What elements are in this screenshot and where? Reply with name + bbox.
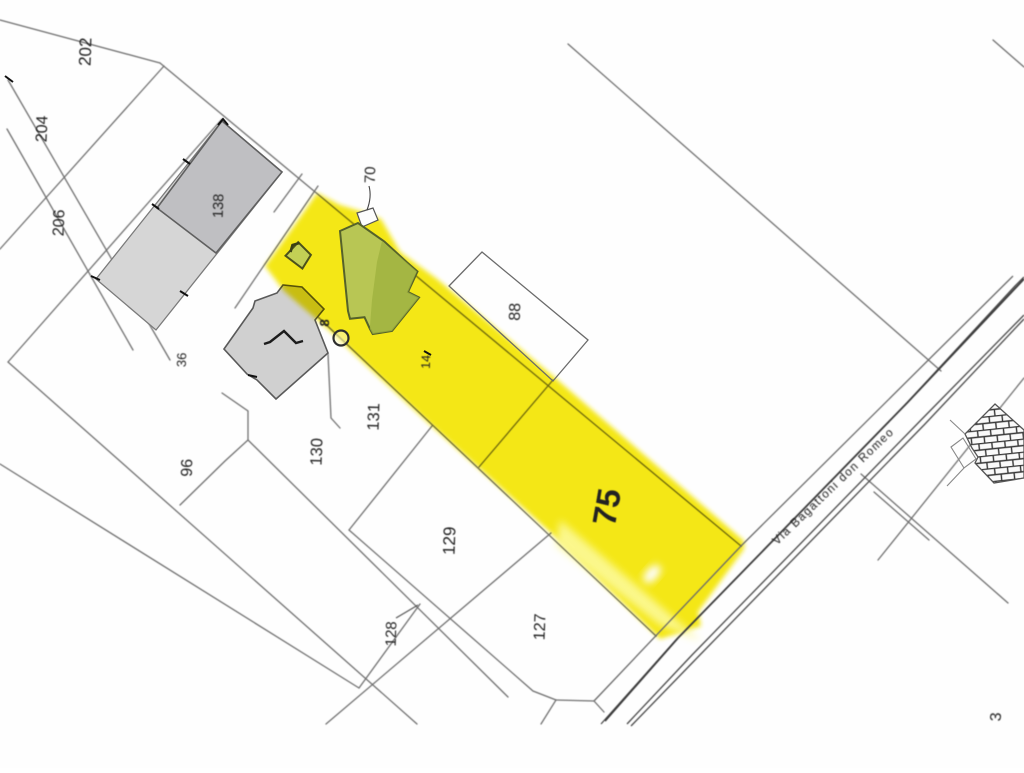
svg-text:206: 206: [51, 209, 69, 236]
svg-text:127: 127: [532, 613, 550, 640]
svg-text:14: 14: [419, 355, 433, 369]
svg-text:88: 88: [507, 303, 525, 321]
svg-text:138: 138: [211, 193, 228, 218]
svg-text:131: 131: [365, 403, 384, 431]
svg-text:204: 204: [34, 115, 52, 142]
svg-text:130: 130: [308, 438, 327, 466]
svg-text:129: 129: [440, 526, 460, 555]
svg-text:36: 36: [174, 352, 189, 367]
svg-text:96: 96: [179, 459, 197, 477]
svg-text:70: 70: [362, 166, 380, 183]
svg-text:128: 128: [383, 621, 401, 647]
svg-text:8: 8: [317, 319, 332, 327]
svg-text:202: 202: [76, 37, 96, 66]
svg-text:3: 3: [988, 712, 1005, 722]
svg-text:75: 75: [585, 486, 628, 529]
